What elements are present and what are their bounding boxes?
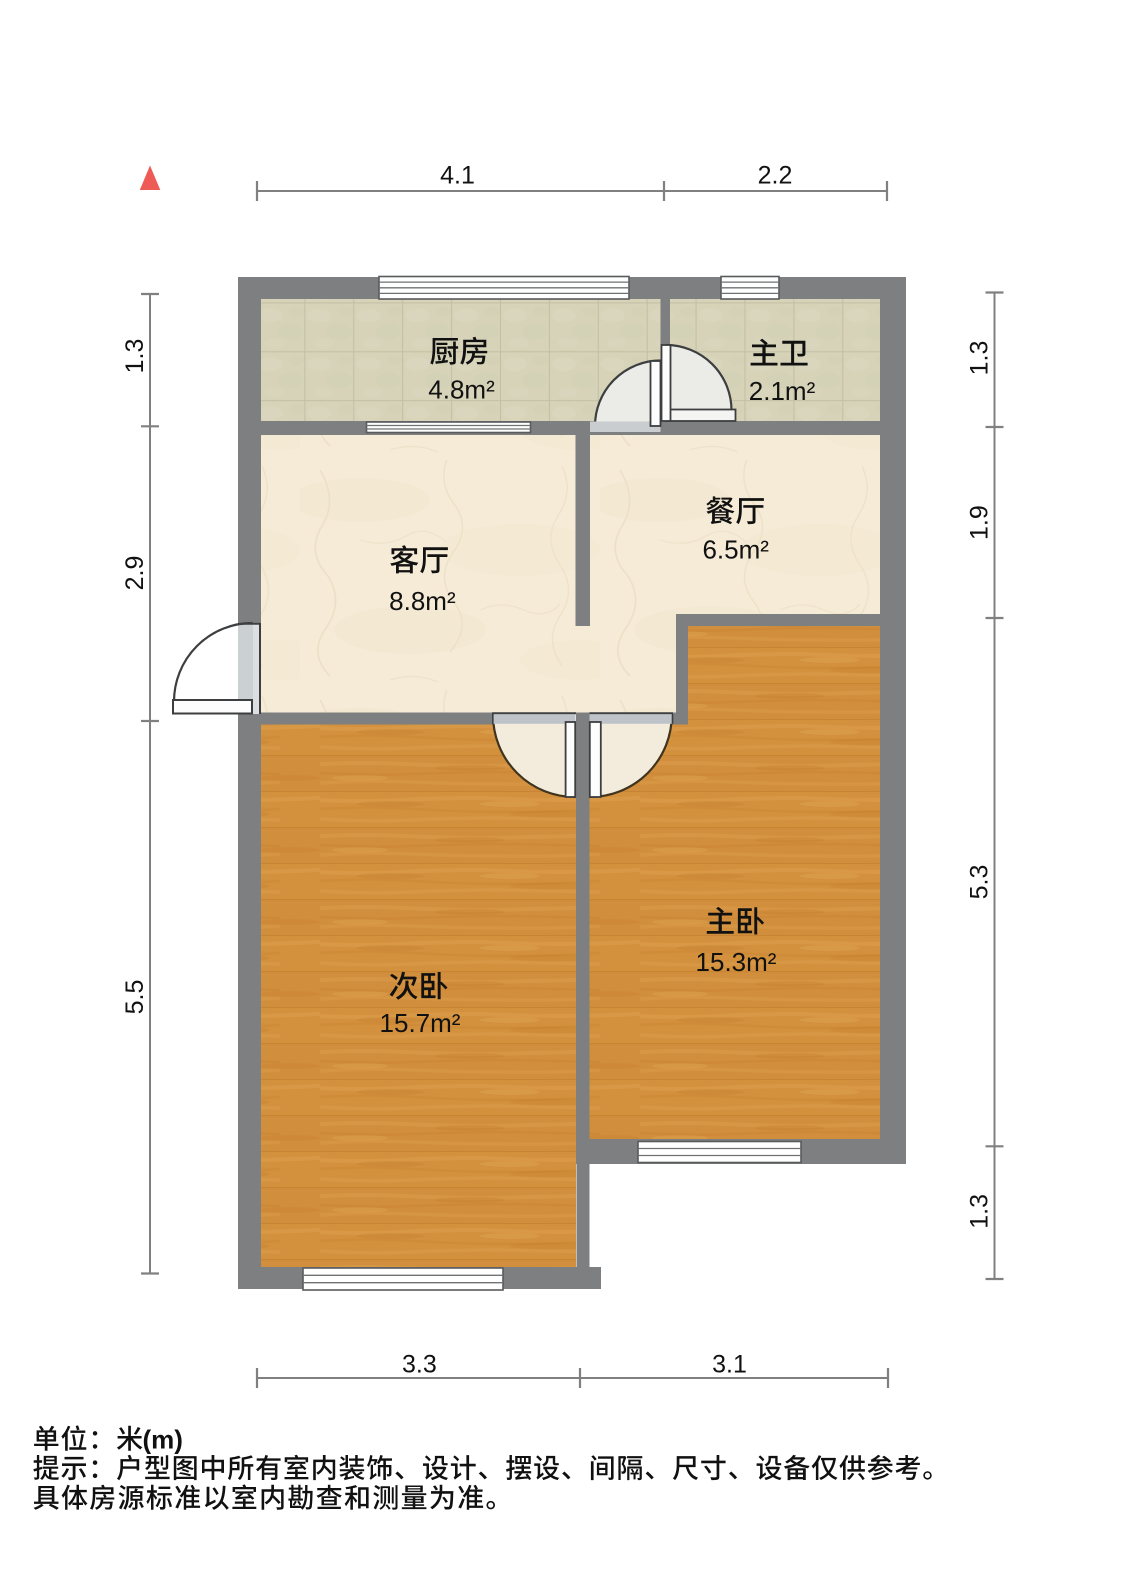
svg-text:1.3: 1.3 (966, 341, 994, 376)
svg-text:1.3: 1.3 (121, 339, 149, 374)
svg-text:5.3: 5.3 (966, 865, 994, 900)
svg-text:3.1: 3.1 (712, 1351, 747, 1379)
svg-text:1.3: 1.3 (966, 1194, 994, 1229)
svg-text:4.1: 4.1 (440, 162, 475, 190)
svg-text:3.3: 3.3 (402, 1351, 437, 1379)
svg-text:15.7m²: 15.7m² (380, 1008, 461, 1038)
svg-text:8.8m²: 8.8m² (389, 586, 456, 616)
svg-text:2.2: 2.2 (758, 162, 793, 190)
svg-text:1.9: 1.9 (966, 505, 994, 540)
svg-text:2.9: 2.9 (121, 556, 149, 591)
svg-text:15.3m²: 15.3m² (696, 947, 777, 977)
svg-text:5.5: 5.5 (121, 980, 149, 1015)
svg-text:(m): (m) (143, 1425, 183, 1455)
svg-text:6.5m²: 6.5m² (702, 534, 769, 564)
svg-text:2.1m²: 2.1m² (749, 376, 816, 406)
svg-text:4.8m²: 4.8m² (428, 375, 495, 405)
